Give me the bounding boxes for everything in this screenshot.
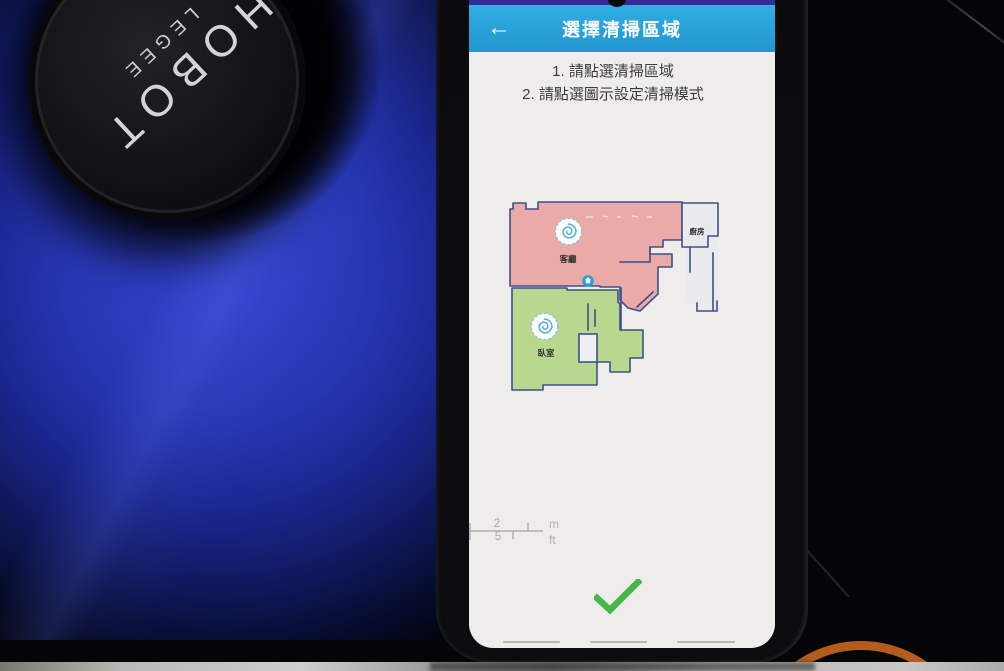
- bedroom-label: 臥室: [538, 348, 555, 358]
- scale-feet-unit: ft: [549, 533, 556, 547]
- living-room-label: 客廳: [559, 254, 577, 264]
- robot-logo: HOBOT LEGEE: [47, 0, 304, 188]
- kitchen-label: 廚房: [689, 226, 705, 236]
- floor-map[interactable]: 客廳 臥室 廚房: [500, 190, 725, 410]
- scale-feet-value: 5: [495, 531, 501, 543]
- confirm-checkmark-button[interactable]: [594, 579, 642, 615]
- phone-screen: 選擇清掃區域 ← 1. 請點選清掃區域 2. 請點選圖示設定清掃模式: [469, 0, 775, 648]
- back-button[interactable]: ←: [483, 13, 515, 45]
- nav-line-right[interactable]: [677, 641, 735, 643]
- nav-line-center[interactable]: [590, 641, 647, 643]
- phone-shadow: [430, 662, 815, 671]
- instruction-line-2: 2. 請點選圖示設定清掃模式: [469, 83, 757, 106]
- bedroom-clean-mode-spiral-icon[interactable]: [531, 313, 557, 339]
- back-arrow-icon: ←: [487, 14, 511, 41]
- living-clean-mode-spiral-icon[interactable]: [555, 218, 581, 244]
- bedroom-notch: [579, 334, 597, 362]
- nav-line-left[interactable]: [503, 641, 560, 643]
- checkmark-icon: [597, 582, 638, 610]
- scale-bar-ruler: [470, 523, 543, 540]
- photo-scene: HOBOT LEGEE 選擇清掃區域 ← 1. 請點選清掃區域 2. 請點選圖示…: [0, 0, 1004, 671]
- map-scale-bar: 2 5 m ft: [469, 503, 579, 549]
- app-header: 選擇清掃區域 ←: [469, 5, 775, 52]
- dock-home-icon: [582, 275, 594, 287]
- instructions: 1. 請點選清掃區域 2. 請點選圖示設定清掃模式: [469, 60, 775, 106]
- scale-meters-unit: m: [549, 517, 559, 531]
- scale-meters-value: 2: [494, 518, 500, 530]
- background-highlight-streak: [913, 0, 1004, 65]
- instruction-line-1: 1. 請點選清掃區域: [469, 60, 757, 83]
